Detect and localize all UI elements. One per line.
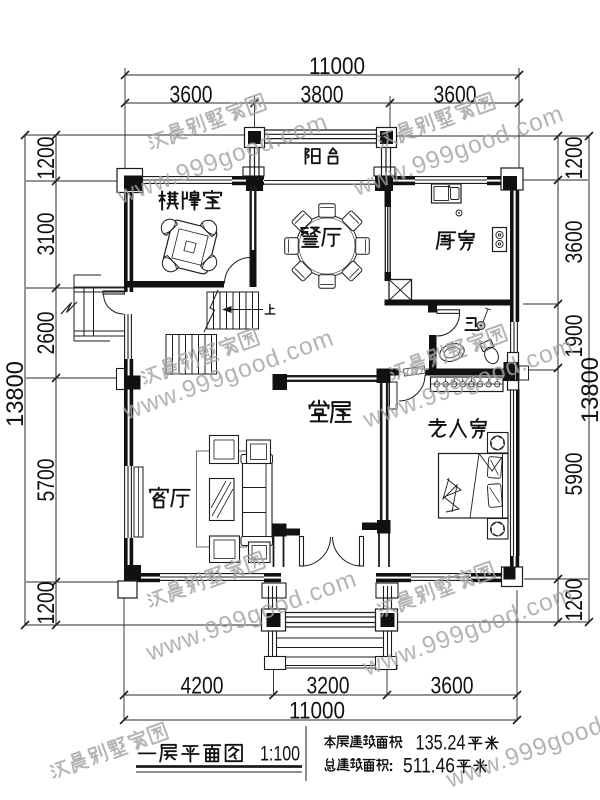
svg-text:11000: 11000 xyxy=(309,53,365,80)
svg-text:1:100: 1:100 xyxy=(260,743,300,766)
svg-text:13800: 13800 xyxy=(577,357,600,423)
svg-text:1200: 1200 xyxy=(561,137,588,180)
svg-text:3100: 3100 xyxy=(33,213,60,256)
svg-text:13800: 13800 xyxy=(2,361,29,427)
svg-text:2600: 2600 xyxy=(33,312,60,355)
svg-text:4200: 4200 xyxy=(181,673,224,700)
svg-text:3600: 3600 xyxy=(561,221,588,264)
svg-text:1200: 1200 xyxy=(33,137,60,180)
svg-text::: : xyxy=(398,735,403,752)
svg-text:3800: 3800 xyxy=(301,82,344,109)
svg-text:5900: 5900 xyxy=(561,453,588,496)
svg-text:135.24: 135.24 xyxy=(416,732,466,755)
svg-text:5700: 5700 xyxy=(33,459,60,502)
svg-text:3600: 3600 xyxy=(170,82,213,109)
svg-text:3600: 3600 xyxy=(431,673,474,700)
svg-text:1200: 1200 xyxy=(33,582,60,625)
svg-text:11000: 11000 xyxy=(289,698,345,725)
svg-text::: : xyxy=(388,758,393,775)
svg-text:3200: 3200 xyxy=(307,673,350,700)
